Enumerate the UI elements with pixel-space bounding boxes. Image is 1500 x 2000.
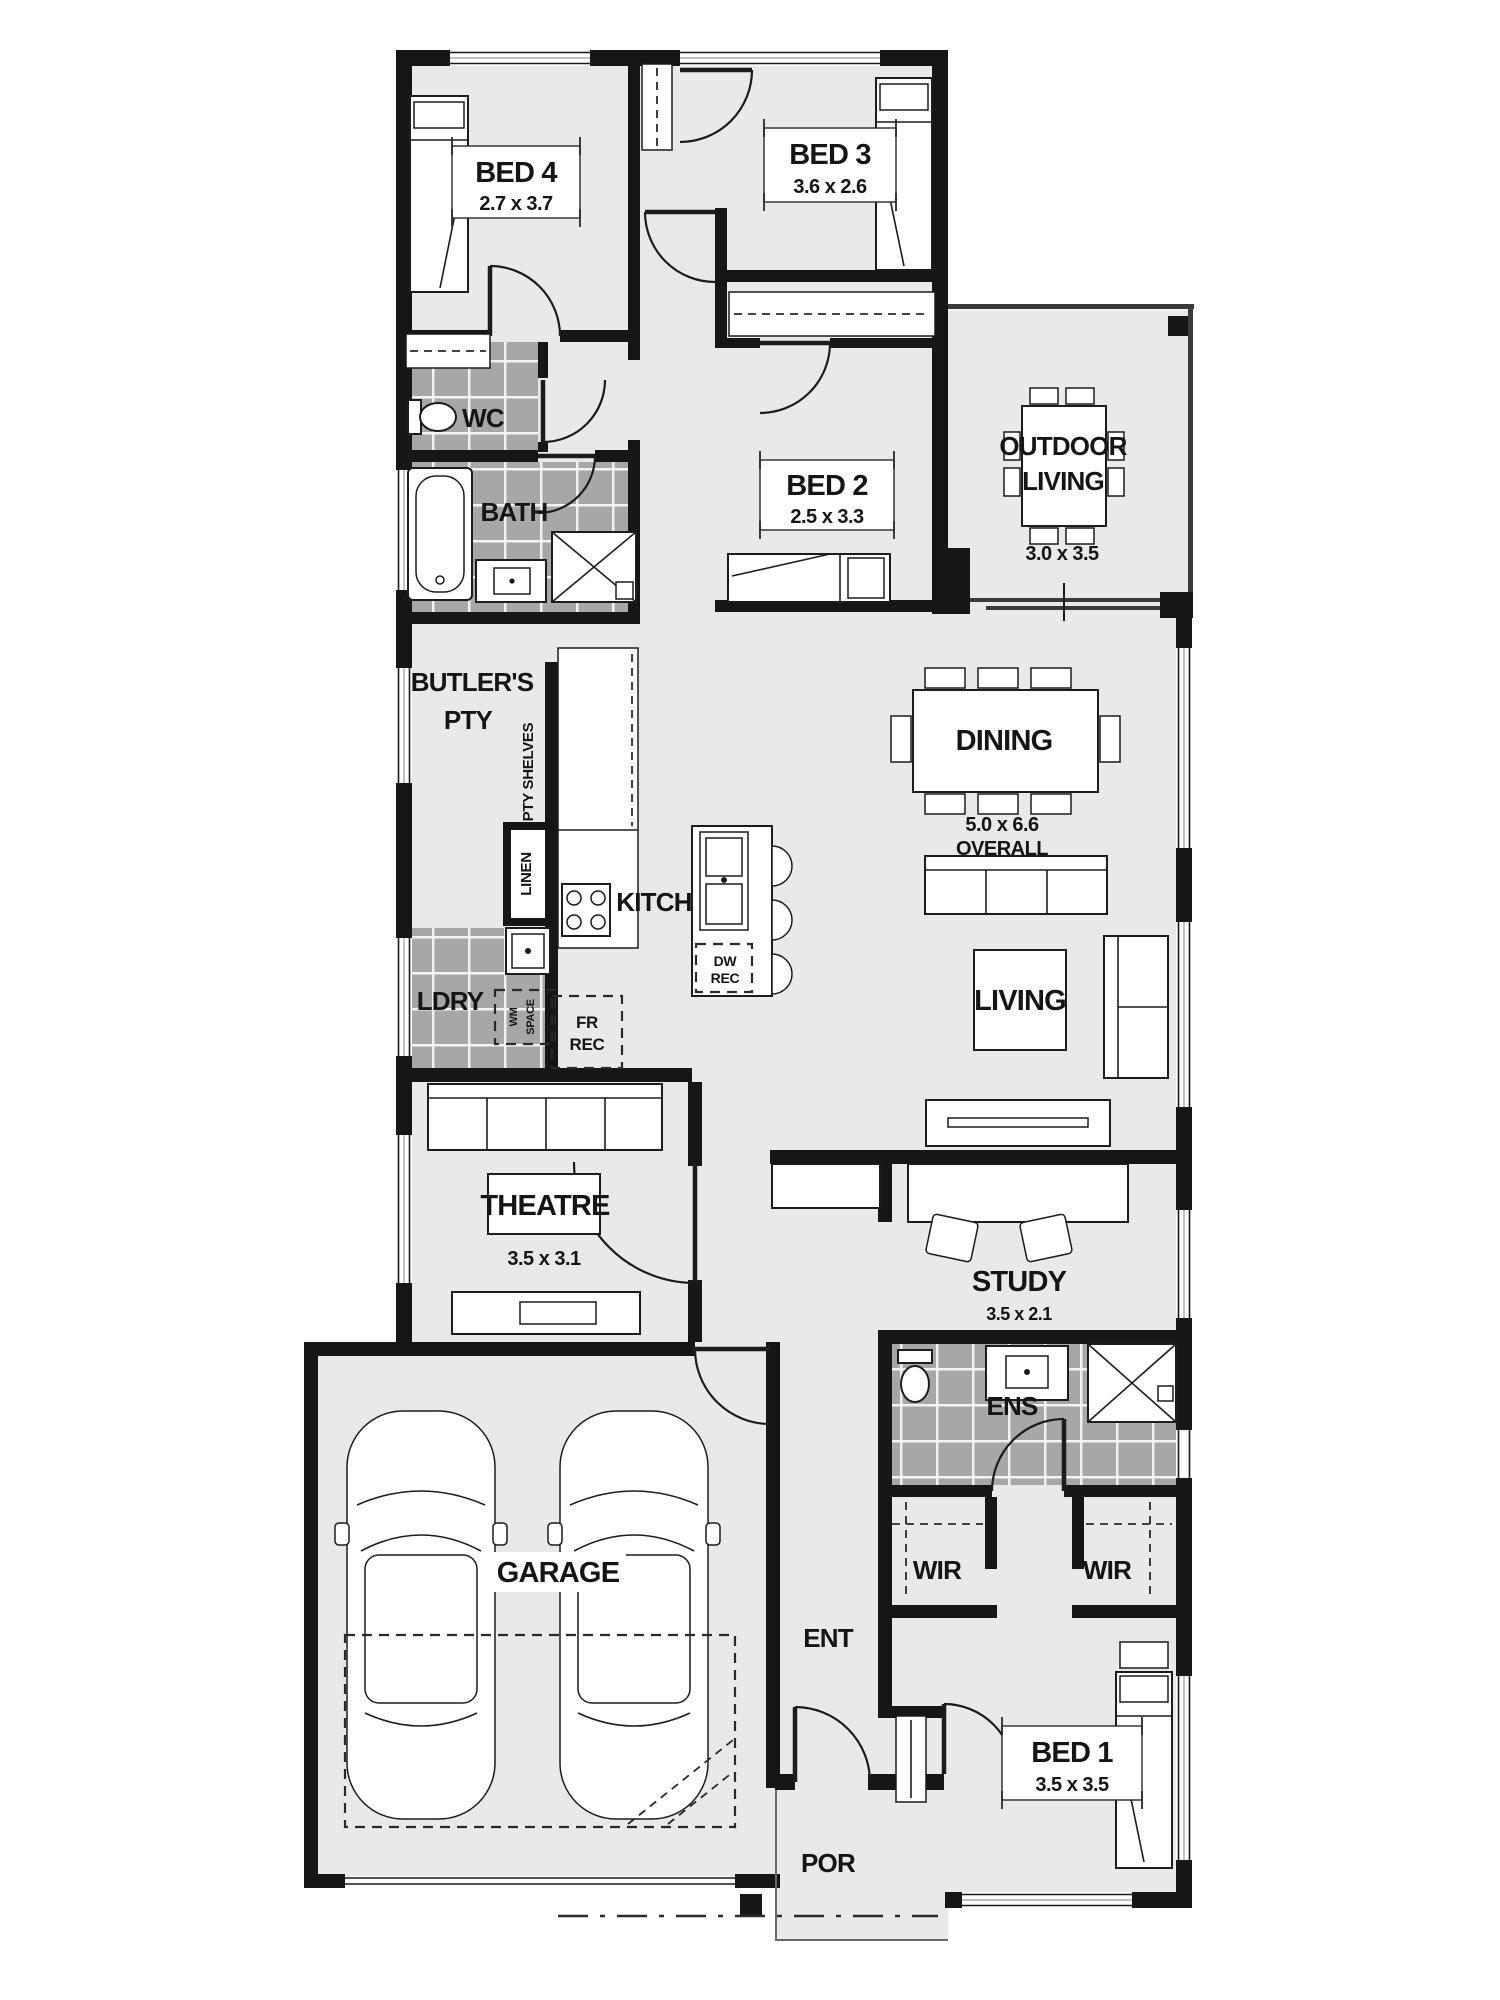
room-label-garage: GARAGE <box>490 1552 626 1592</box>
window <box>1176 1430 1192 1478</box>
floor-plan-page: BED 4 2.7 x 3.7 BED 3 3.6 x 2.6 BED 2 2.… <box>0 0 1500 2000</box>
svg-text:BED 1: BED 1 <box>1031 1737 1113 1769</box>
shower-icon <box>1088 1344 1176 1422</box>
shower-icon <box>552 532 636 602</box>
svg-text:3.6 x 2.6: 3.6 x 2.6 <box>793 176 867 198</box>
svg-text:BUTLER'S: BUTLER'S <box>411 667 534 697</box>
svg-text:FR: FR <box>576 1013 598 1032</box>
room-label-bed4: BED 4 2.7 x 3.7 <box>452 137 580 227</box>
svg-text:LIVING: LIVING <box>1022 466 1104 496</box>
window <box>1176 648 1192 848</box>
svg-text:DW: DW <box>714 953 738 969</box>
room-label-bed1: BED 1 3.5 x 3.5 <box>1002 1717 1142 1809</box>
floor-plan-svg: BED 4 2.7 x 3.7 BED 3 3.6 x 2.6 BED 2 2.… <box>0 0 1500 2000</box>
label-dw-rec: DW REC <box>711 953 740 986</box>
room-label-laundry: LDRY <box>417 986 484 1016</box>
room-label-porch: POR <box>801 1848 856 1878</box>
svg-text:PTY: PTY <box>444 705 493 735</box>
svg-text:OVERALL: OVERALL <box>956 838 1048 860</box>
laundry-trough-icon <box>506 928 550 974</box>
window <box>680 50 880 66</box>
window <box>1176 1210 1192 1318</box>
tv-unit-icon <box>452 1292 640 1334</box>
window <box>450 50 590 66</box>
window <box>396 1135 412 1283</box>
svg-text:5.0 x 6.6: 5.0 x 6.6 <box>965 814 1039 836</box>
room-label-bath: BATH <box>480 497 547 527</box>
svg-text:OUTDOOR: OUTDOOR <box>999 431 1127 461</box>
wardrobe-icon <box>642 64 672 150</box>
hall-cabinet-icon <box>896 1716 926 1802</box>
room-label-living: LIVING <box>974 985 1066 1017</box>
svg-text:BED 3: BED 3 <box>789 139 871 171</box>
label-linen: LINEN <box>518 852 535 896</box>
label-pantry-shelves: PTY SHELVES <box>520 722 537 821</box>
tv-unit-icon <box>926 1100 1110 1146</box>
room-label-bed3: BED 3 3.6 x 2.6 <box>764 119 896 211</box>
garage-door <box>345 1876 735 1886</box>
svg-text:3.5 x 3.5: 3.5 x 3.5 <box>1035 1774 1109 1796</box>
svg-text:WM: WM <box>508 1007 520 1026</box>
svg-text:3.0 x 3.5: 3.0 x 3.5 <box>1025 543 1099 565</box>
svg-text:STUDY: STUDY <box>972 1266 1067 1298</box>
room-label-wir-right: WIR <box>1083 1555 1132 1585</box>
svg-text:DINING: DINING <box>956 725 1053 757</box>
car-icon <box>335 1411 507 1819</box>
svg-text:THEATRE: THEATRE <box>480 1190 610 1222</box>
svg-text:REC: REC <box>711 970 740 986</box>
svg-text:GARAGE: GARAGE <box>497 1557 620 1589</box>
armchair-icon <box>1104 936 1168 1078</box>
svg-text:BED 2: BED 2 <box>786 470 867 502</box>
bathtub-icon <box>408 468 472 600</box>
room-label-ensuite: ENS <box>986 1391 1038 1421</box>
car-icon <box>548 1411 720 1819</box>
sofa-icon <box>428 1084 662 1150</box>
cooktop-icon <box>562 884 610 936</box>
svg-text:3.5 x 2.1: 3.5 x 2.1 <box>986 1304 1052 1324</box>
svg-text:BED 4: BED 4 <box>475 157 557 189</box>
vanity-icon <box>476 560 546 602</box>
wardrobe-icon <box>729 292 935 336</box>
window <box>1176 1676 1192 1860</box>
window <box>396 668 412 783</box>
toilet-icon <box>898 1350 932 1402</box>
room-label-wc: WC <box>462 403 505 433</box>
room-label-bed2: BED 2 2.5 x 3.3 <box>760 451 894 539</box>
room-label-kitchen: KITCH <box>616 887 691 917</box>
svg-text:3.5 x 3.1: 3.5 x 3.1 <box>507 1248 581 1270</box>
svg-text:REC: REC <box>570 1035 605 1054</box>
toilet-icon <box>408 400 456 434</box>
stool-icon <box>772 846 792 994</box>
svg-text:SPACE: SPACE <box>525 999 537 1035</box>
window <box>396 938 412 1056</box>
wardrobe-icon <box>406 334 490 368</box>
sofa-icon <box>925 856 1107 914</box>
svg-text:2.5 x 3.3: 2.5 x 3.3 <box>790 506 864 528</box>
room-label-wir-left: WIR <box>913 1555 962 1585</box>
svg-text:2.7 x 3.7: 2.7 x 3.7 <box>479 193 553 215</box>
window <box>1176 922 1192 1107</box>
bed-icon <box>728 554 890 602</box>
window <box>962 1892 1132 1908</box>
room-label-entry: ENT <box>803 1623 854 1653</box>
